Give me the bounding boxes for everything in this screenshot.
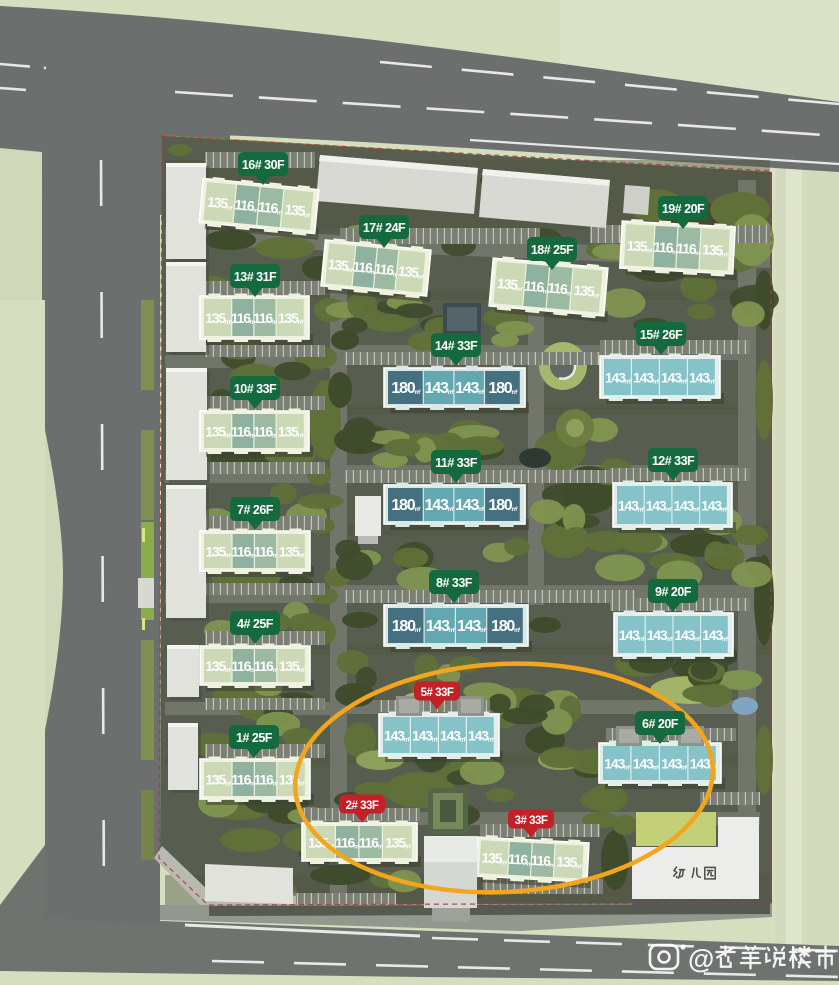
svg-text:12# 33F: 12# 33F <box>652 454 695 468</box>
svg-text:1# 25F: 1# 25F <box>236 731 273 745</box>
svg-text:17# 24F: 17# 24F <box>363 221 406 235</box>
svg-text:13# 31F: 13# 31F <box>234 270 277 284</box>
svg-text:6# 20F: 6# 20F <box>642 717 679 731</box>
svg-text:15# 26F: 15# 26F <box>640 328 683 342</box>
svg-text:7# 26F: 7# 26F <box>237 503 274 517</box>
svg-text:9# 20F: 9# 20F <box>655 585 692 599</box>
svg-text:19# 20F: 19# 20F <box>662 202 705 216</box>
svg-text:4# 25F: 4# 25F <box>237 617 274 631</box>
svg-text:11# 33F: 11# 33F <box>435 456 478 470</box>
svg-text:3# 33F: 3# 33F <box>515 815 548 827</box>
svg-text:8# 33F: 8# 33F <box>436 576 473 590</box>
svg-text:10# 33F: 10# 33F <box>234 382 277 396</box>
svg-text:16# 30F: 16# 30F <box>242 158 285 172</box>
svg-text:@: @ <box>688 944 714 974</box>
svg-text:5# 33F: 5# 33F <box>421 687 454 699</box>
svg-text:2# 33F: 2# 33F <box>346 800 379 812</box>
svg-text:18# 25F: 18# 25F <box>531 243 574 257</box>
svg-text:14# 33F: 14# 33F <box>435 339 478 353</box>
